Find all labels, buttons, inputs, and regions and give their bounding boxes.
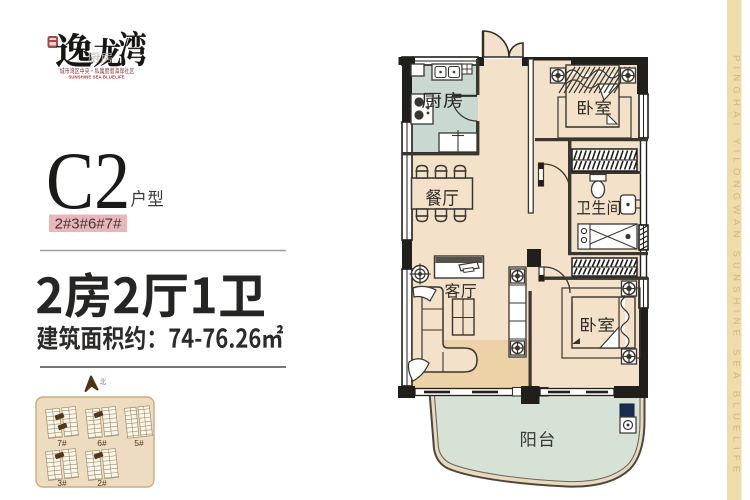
svg-text:PINGHAI YILONGWAN SUNSHINE SEA: PINGHAI YILONGWAN SUNSHINE SEA BLUELIFE	[731, 55, 742, 477]
svg-text:3#: 3#	[57, 478, 67, 488]
svg-text:7#: 7#	[57, 438, 67, 448]
svg-text:SUNSHINE SEA BLUELIFE: SUNSHINE SEA BLUELIFE	[68, 75, 124, 80]
svg-text:6#: 6#	[97, 438, 107, 448]
svg-text:2#3#6#7#: 2#3#6#7#	[55, 216, 122, 233]
svg-text:2#: 2#	[97, 478, 107, 488]
svg-text:5#: 5#	[134, 438, 144, 448]
svg-text:C2: C2	[46, 135, 130, 226]
